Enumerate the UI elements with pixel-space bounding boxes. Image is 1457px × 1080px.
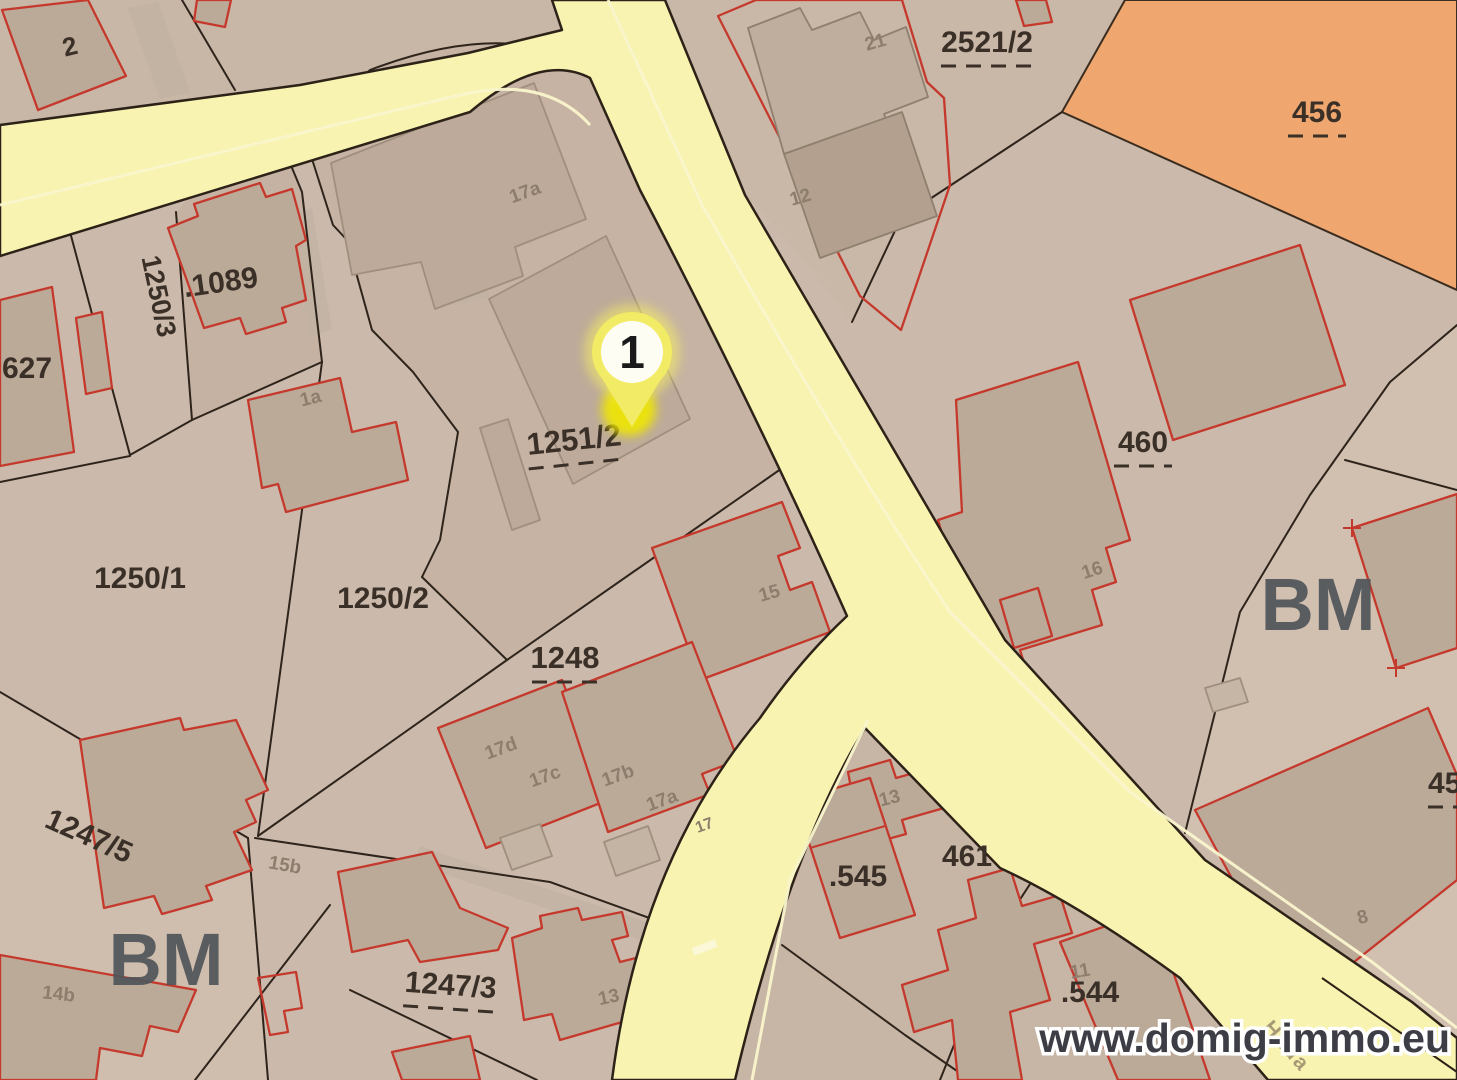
parcel-label: .545	[829, 860, 887, 893]
building-label-text: 13	[596, 985, 621, 1010]
parcel-label-text: .545	[829, 860, 887, 893]
marker-number: 1	[619, 326, 645, 378]
parcel-label-text: 1248	[531, 640, 600, 675]
parcel-label-text: .544	[1061, 976, 1120, 1009]
building-label: 14b	[41, 982, 76, 1006]
building-label: 11	[1068, 959, 1092, 983]
building-label-text: 14b	[41, 982, 76, 1006]
parcel-label: 461	[942, 840, 992, 873]
parcel-label: 1250/2	[337, 582, 429, 615]
building-label: 13	[596, 985, 621, 1010]
parcel-label-text: 1250/2	[337, 582, 429, 615]
building-label-text: 11	[1068, 959, 1092, 983]
parcel-label-text: 1247/3	[404, 966, 498, 1005]
watermark: www.domig-immo.eu	[1038, 1015, 1450, 1061]
parcel-label: .544	[1061, 976, 1120, 1009]
bm-zone-label-right: BM	[1260, 563, 1375, 646]
parcel-label-text: 2521/2	[941, 26, 1033, 59]
parcel-label: 627	[2, 352, 52, 385]
parcel-label-text: 460	[1118, 426, 1168, 459]
parcel-label-text: 627	[2, 352, 52, 385]
map-canvas: 2.10896271250/31250/11250/21251/21248124…	[0, 0, 1457, 1080]
parcel-label-text: 461	[942, 840, 992, 873]
parcel-label: 1250/1	[94, 562, 186, 595]
parcel-label-text: 45	[1428, 767, 1457, 800]
parcel-label-text: 456	[1292, 96, 1342, 129]
cadastral-map: 2.10896271250/31250/11250/21251/21248124…	[0, 0, 1457, 1080]
parcel-label-text: 1250/1	[94, 562, 186, 595]
bm-zone-label-left: BM	[108, 918, 223, 1001]
